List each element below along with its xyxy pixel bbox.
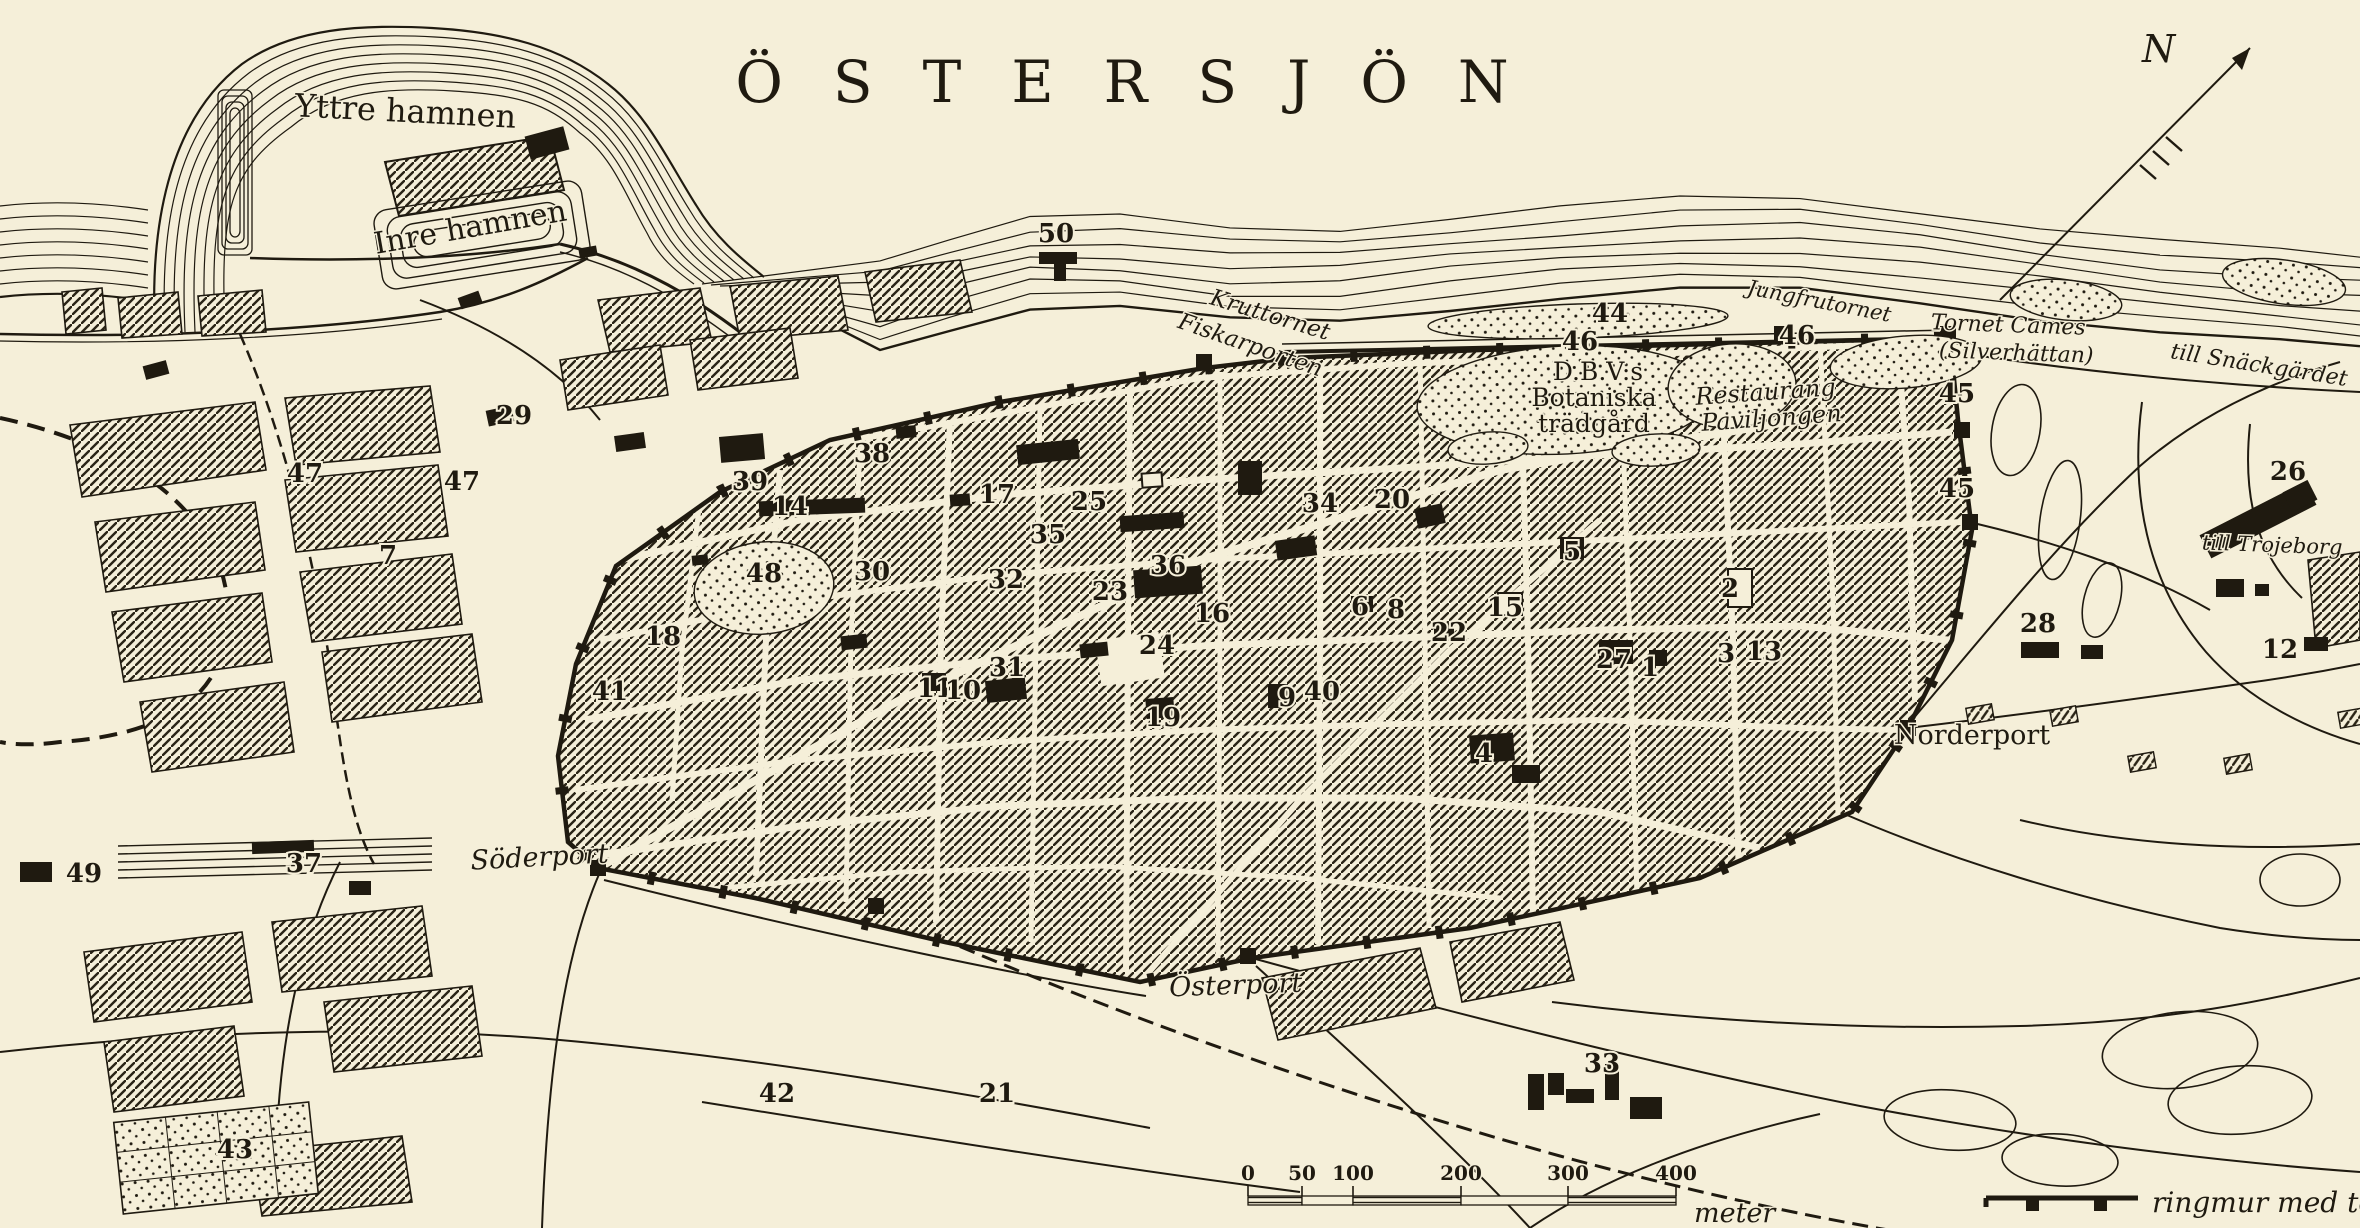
site-number: 44	[1592, 299, 1628, 329]
site-number: 22	[1431, 618, 1467, 648]
site-number: 21	[979, 1079, 1015, 1109]
scale-tick-label: 200	[1440, 1161, 1482, 1185]
compass-north-label: N	[2141, 27, 2177, 71]
site-number: 43	[217, 1135, 253, 1165]
map-stage: ÖSTERSJÖN Yttre hamnenInre hamnenKruttor…	[0, 0, 2360, 1228]
site-number: 37	[286, 849, 322, 879]
site-number: 17	[979, 480, 1015, 510]
site-number: 27	[1596, 645, 1632, 675]
scale-tick-label: 0	[1241, 1161, 1255, 1185]
legend-label: ringmur med torn	[2152, 1186, 2360, 1219]
site-number: 49	[66, 859, 102, 889]
site-number: 47	[444, 467, 480, 497]
site-number: 25	[1071, 487, 1107, 517]
site-number: 4	[1475, 739, 1493, 769]
site-number: 14	[772, 492, 808, 522]
scale-tick-label: 400	[1655, 1161, 1697, 1185]
site-number: 50	[1038, 219, 1074, 249]
site-number: 36	[1150, 551, 1186, 581]
site-number: 35	[1030, 520, 1066, 550]
site-number: 26	[2270, 457, 2306, 487]
site-number: 3	[1717, 639, 1735, 669]
map-label: trädgård	[1538, 409, 1650, 438]
site-number: 42	[759, 1079, 795, 1109]
site-number: 46	[1562, 327, 1598, 357]
site-number: 18	[645, 622, 681, 652]
site-number: 6	[1351, 592, 1369, 622]
site-number: 15	[1487, 593, 1523, 623]
site-number: 31	[989, 653, 1025, 683]
site-number: 47	[287, 459, 323, 489]
site-number: 9	[1278, 683, 1296, 713]
site-number: 32	[988, 565, 1024, 595]
site-number: 33	[1584, 1049, 1620, 1079]
site-number: 2	[1721, 574, 1739, 604]
site-number: 13	[1746, 637, 1782, 667]
site-number: 28	[2020, 609, 2056, 639]
site-number: 34	[1302, 489, 1338, 519]
site-number: 5	[1563, 537, 1581, 567]
site-number: 19	[1145, 703, 1181, 733]
site-number: 40	[1304, 677, 1340, 707]
site-number: 41	[592, 677, 628, 707]
scale-tick-label: 300	[1547, 1161, 1589, 1185]
scale-tick-label: 50	[1288, 1161, 1316, 1185]
site-number: 1	[1641, 653, 1659, 683]
map-label: till Trojeborg	[2202, 531, 2343, 560]
scale-unit-label: meter	[1694, 1198, 1777, 1228]
site-number: 10	[945, 676, 981, 706]
site-number: 30	[854, 557, 890, 587]
map-label: D.B.V:s	[1553, 357, 1643, 386]
map-label: Norderport	[1894, 720, 2050, 751]
sea-title: ÖSTERSJÖN	[735, 48, 1558, 116]
site-number: 24	[1139, 631, 1175, 661]
site-number: 39	[732, 467, 768, 497]
scale-tick-label: 100	[1332, 1161, 1374, 1185]
site-number: 20	[1374, 485, 1410, 515]
site-number: 12	[2262, 635, 2298, 665]
site-number: 7	[379, 541, 397, 571]
site-number: 45	[1939, 379, 1975, 409]
site-number: 23	[1092, 577, 1128, 607]
site-number: 29	[496, 401, 532, 431]
site-number: 38	[854, 439, 890, 469]
visby-city-map: ÖSTERSJÖN Yttre hamnenInre hamnenKruttor…	[0, 0, 2360, 1228]
site-number: 8	[1387, 595, 1405, 625]
site-number: 48	[746, 559, 782, 589]
map-label: Botaniska	[1531, 383, 1656, 412]
site-number: 16	[1194, 599, 1230, 629]
site-number: 45	[1939, 474, 1975, 504]
site-number: 46	[1779, 321, 1815, 351]
